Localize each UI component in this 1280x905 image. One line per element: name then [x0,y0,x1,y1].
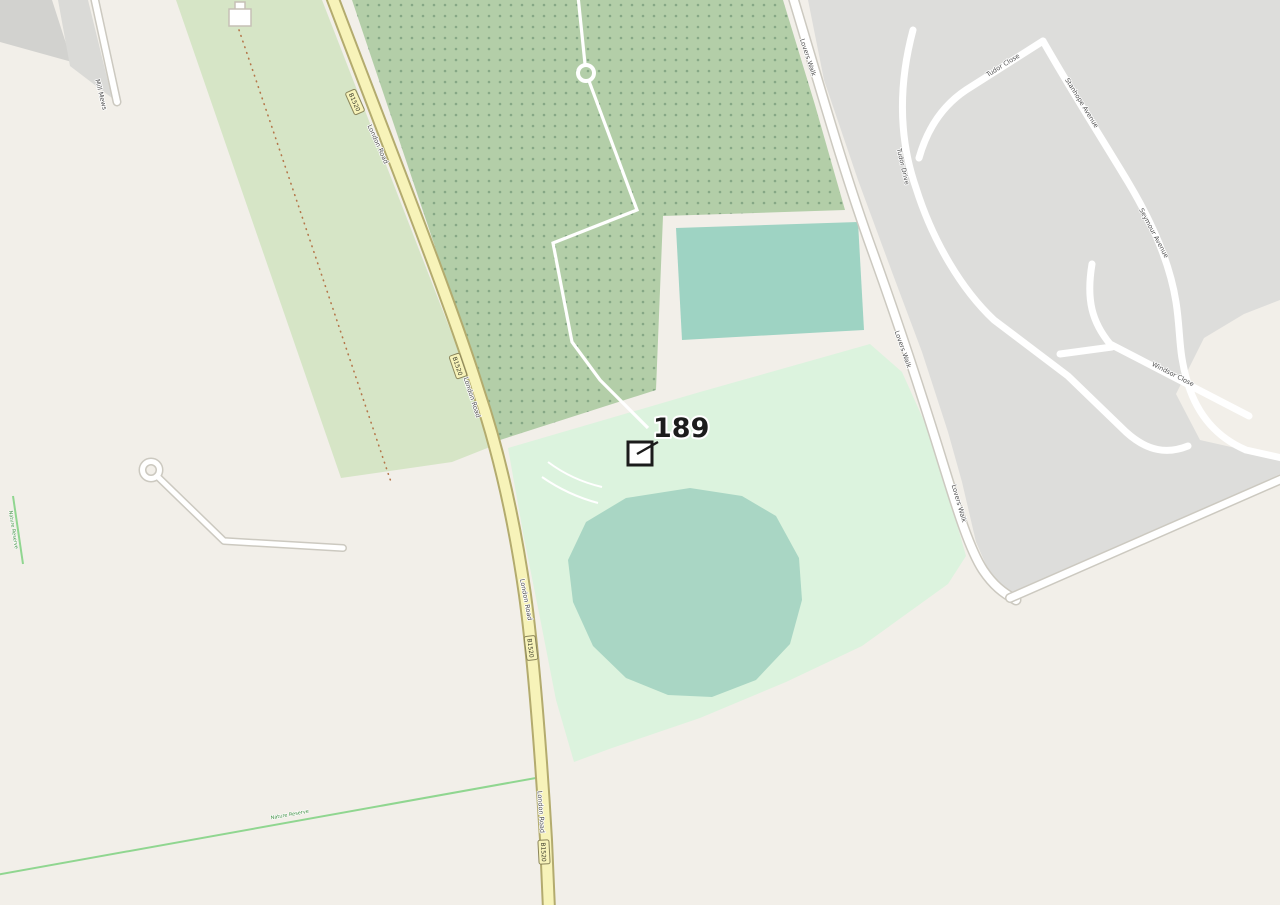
road-shield: B1520 [538,840,550,865]
map-svg[interactable]: B1520 B1520 B1520 B1520 London Road Lond… [0,0,1280,905]
marker-number-label: 189 [653,413,709,444]
road-ref: B1520 [539,842,547,862]
area-basin-rect [676,222,864,340]
map-canvas[interactable]: B1520 B1520 B1520 B1520 London Road Lond… [0,0,1280,905]
road-shield: B1520 [524,635,538,660]
